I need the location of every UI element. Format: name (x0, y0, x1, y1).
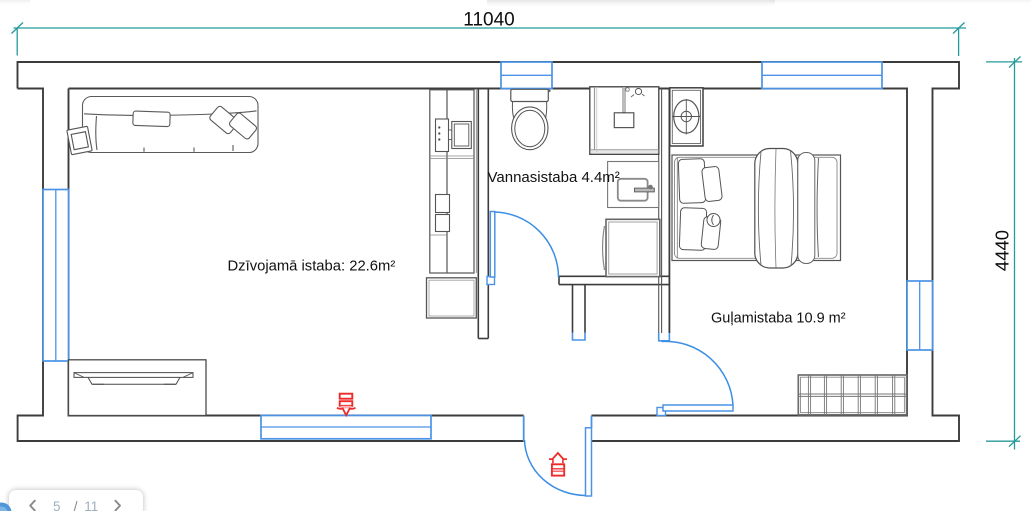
svg-text:Dzīvojamā istaba: 22.6m²: Dzīvojamā istaba: 22.6m² (228, 259, 396, 275)
svg-text:Vannasistaba 4.4m²: Vannasistaba 4.4m² (488, 169, 620, 186)
svg-text:11: 11 (84, 499, 98, 511)
svg-text:4440: 4440 (992, 230, 1013, 271)
svg-text:11040: 11040 (463, 10, 514, 31)
svg-text:Guļamistaba 10.9 m²: Guļamistaba 10.9 m² (711, 311, 846, 327)
svg-text:5: 5 (53, 499, 61, 511)
svg-text:/: / (74, 499, 78, 511)
